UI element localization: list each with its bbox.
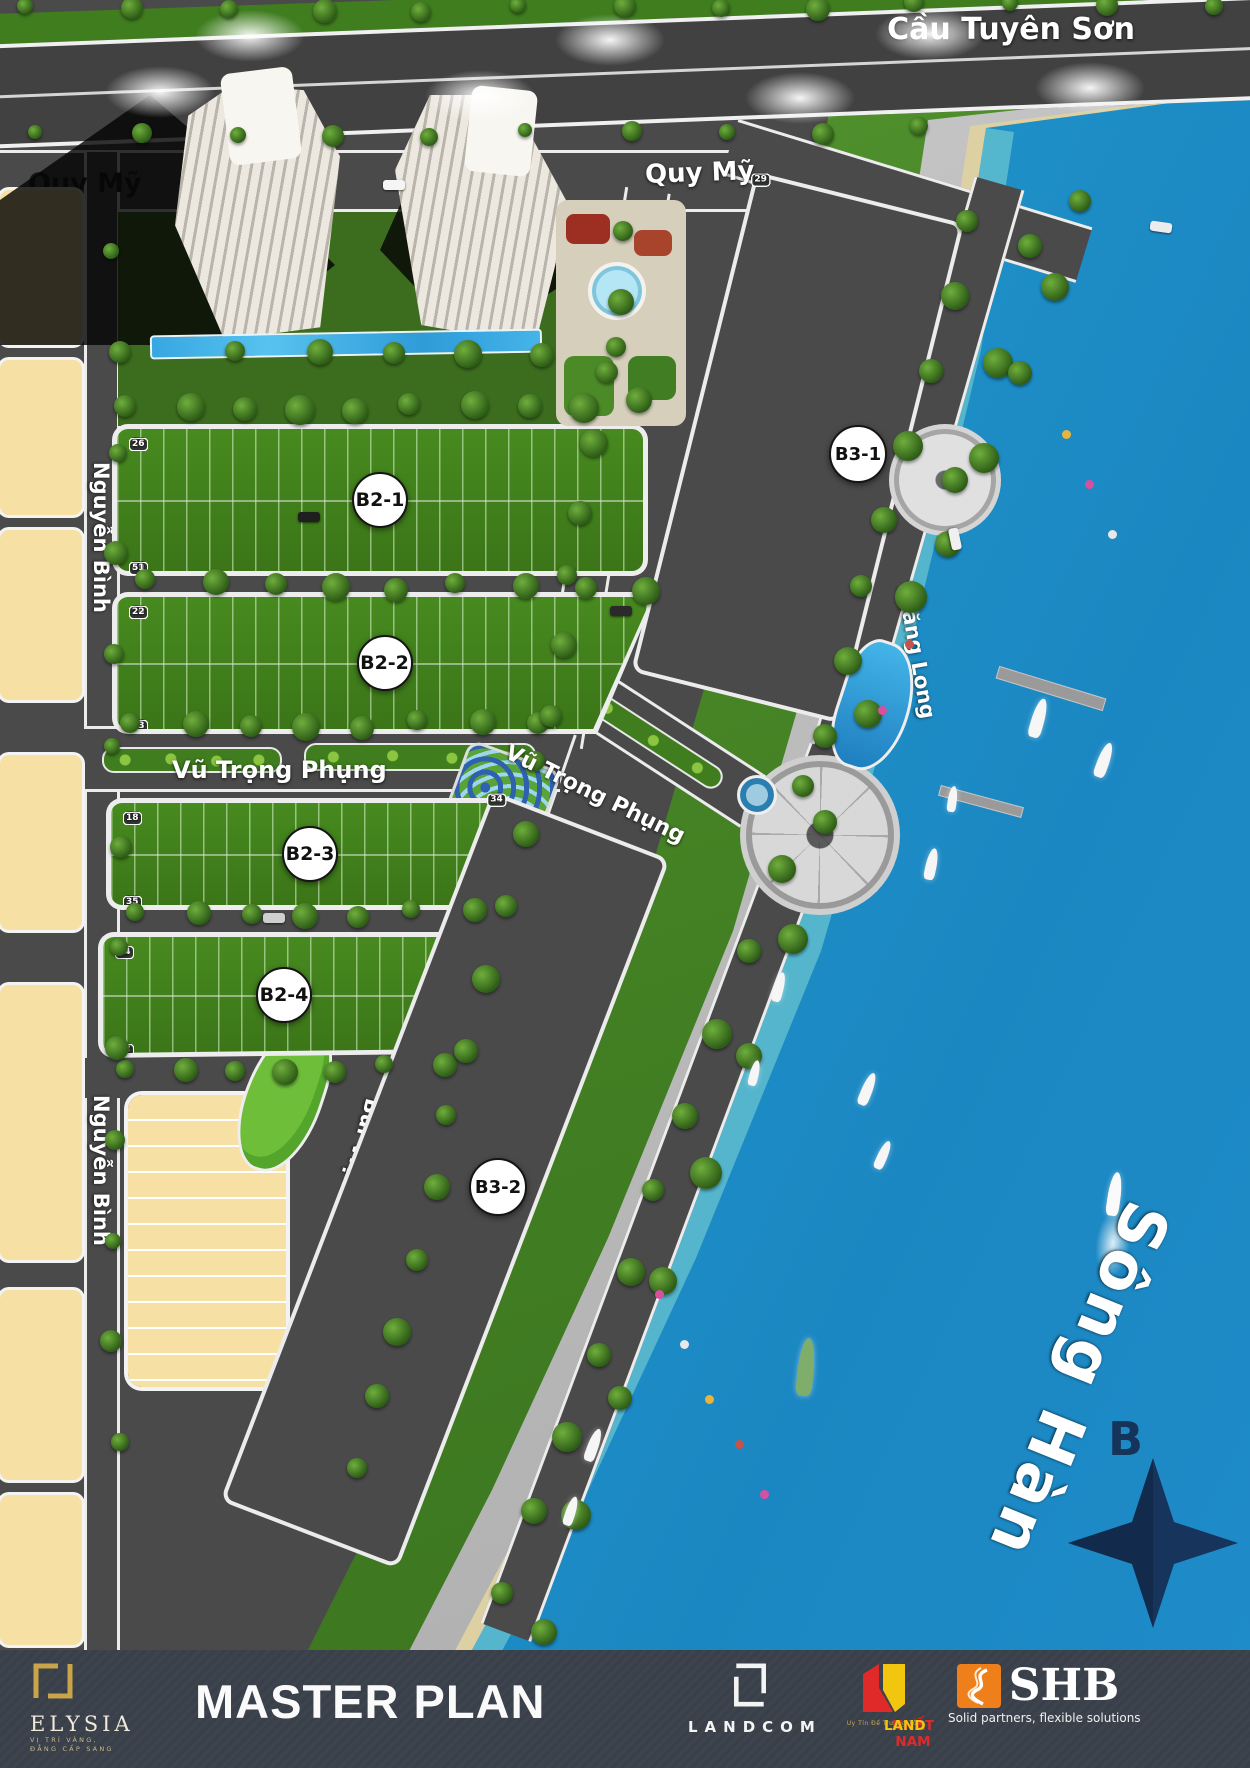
tree [813,810,837,834]
tree [454,340,482,368]
tree [712,0,730,17]
tree [941,282,969,310]
tree [406,1249,428,1271]
tree [454,1039,478,1063]
tree [342,398,368,424]
tree [513,573,539,599]
tree [530,343,554,367]
tree [792,775,814,797]
flower-bed [878,706,887,715]
tree [265,573,287,595]
tree [433,1053,457,1077]
tree [513,821,539,847]
tree [622,121,642,141]
tree [672,1103,698,1129]
tree [424,1174,450,1200]
tree [402,900,420,918]
tree [540,705,562,727]
block-lawn: 1345678910111213141516171819202223252627… [117,597,652,729]
lot-number: 29 [751,174,770,187]
block-label-B2-2: B2-2 [357,635,413,691]
existing-lot [0,985,82,1260]
car [263,913,285,923]
tree [111,1433,129,1451]
existing-lot [0,360,82,515]
bridge-lane-divider [0,46,1250,99]
nhat-nam-land-logo: NHẤT NAM LAND Uy Tín Để Trường Tồn [826,1660,942,1727]
lot-number: 34 [487,794,506,807]
tree [285,395,315,425]
tree [230,127,246,143]
tree [109,444,127,462]
tree [126,903,144,921]
tree [942,467,968,493]
existing-lot [0,530,82,700]
existing-lot [0,1290,82,1480]
street-label-nguyen-binh: Nguyễn Bình [89,1095,113,1246]
tree [495,895,517,917]
elysia-square-icon [30,1658,76,1704]
tree [813,724,837,748]
flower-bed [760,1490,769,1499]
flower-bed [1062,430,1071,439]
block-label-B2-4: B2-4 [256,967,312,1023]
tree [203,569,229,595]
tree [225,341,245,361]
tree [109,341,131,363]
tree [240,715,262,737]
tree [580,429,608,457]
tree [956,210,978,232]
flower-bed [634,230,672,256]
tree [642,1179,664,1201]
existing-lot [0,1495,82,1645]
flower-bed [735,1440,744,1449]
tree [347,1458,367,1478]
street-label-vu-trong-phung: Vũ Trọng Phụng [172,756,387,784]
tree [557,565,577,585]
tree [854,700,882,728]
tree [613,221,633,241]
tree [1096,0,1118,16]
car [383,180,405,190]
elysia-name: ELYSIA [30,1712,180,1736]
tree [470,709,496,735]
tree [552,1422,582,1452]
flower-bed [905,640,914,649]
tree [690,1157,722,1189]
tree [850,575,872,597]
shb-flame-icon [957,1664,1001,1708]
tree [383,342,405,364]
tree [103,243,119,259]
tree [617,1258,645,1286]
tree [1041,273,1069,301]
tree [969,443,999,473]
tree [910,117,928,135]
tree [778,924,808,954]
flower-bed [655,1290,664,1299]
tree [1018,234,1042,258]
bridge-label: Cầu Tuyên Sơn [887,12,1135,47]
tree [132,123,152,143]
block-label-B3-2: B3-2 [469,1158,527,1216]
tree [895,581,927,613]
villa-lot: 34 [495,799,498,802]
block-label-B3-1: B3-1 [829,425,887,483]
tree [569,393,599,423]
tree [272,1059,298,1085]
tree [365,1384,389,1408]
block-B2-1: 1345678910111213141516171819202122232426… [112,424,648,576]
shb-logo-row: SHB [948,1664,1128,1708]
tree [626,387,652,413]
tree [177,393,205,421]
tree [350,716,374,740]
tree [28,125,42,139]
flower-bed [1085,480,1094,489]
tree [104,644,124,664]
lot-number: 18 [123,812,142,825]
tree [110,836,132,858]
tree [768,855,796,883]
landcom-name: LANDCOM [688,1718,812,1736]
lot-number: 26 [129,438,148,451]
flower-bed [1108,530,1117,539]
flower-bed [566,214,610,244]
shb-tagline: Solid partners, flexible solutions [948,1711,1128,1725]
tree [116,1060,134,1078]
shb-name: SHB [1009,1664,1120,1708]
tree [135,569,155,589]
elysia-tagline: ĐẲNG CẤP SANG [30,1745,180,1754]
compass-rose-icon [1058,1448,1248,1638]
shb-logo: SHB Solid partners, flexible solutions [948,1664,1128,1725]
villa-lot: 29 [759,179,761,181]
tree [587,1343,611,1367]
street-label-nguyen-binh: Nguyễn Bình [89,462,113,613]
tree [632,577,660,605]
tree [322,573,350,601]
tree [608,289,634,315]
tree [383,1318,411,1346]
tree [225,1061,245,1081]
block-label-B2-1: B2-1 [352,472,408,528]
existing-lot [0,755,82,930]
tree [461,391,489,419]
tree [104,738,120,754]
flower-bed [680,1340,689,1349]
tree [398,393,420,415]
tree [436,1105,456,1125]
tower-roof [220,66,303,166]
tree [606,337,626,357]
tree [322,125,344,147]
tree [347,906,369,928]
master-plan-map: Cầu Tuyên Sơn 13456789101112131415161718… [0,0,1250,1768]
elysia-logo: ELYSIA VỊ TRÍ VÀNG, ĐẲNG CẤP SANG [30,1658,180,1754]
tree [806,0,830,21]
block-label-B2-3: B2-3 [282,826,338,882]
tree [491,1582,513,1604]
tree [384,578,408,602]
tree [242,904,262,924]
footer-bar: ELYSIA VỊ TRÍ VÀNG, ĐẲNG CẤP SANG MASTER… [0,1650,1250,1768]
tree [472,965,500,993]
block-lawn: 1345678910111213141516181921222324252627… [111,803,509,905]
tree [105,1233,121,1249]
tree [220,0,238,18]
tree [187,901,211,925]
fountain [737,775,777,815]
tree [518,123,532,137]
tree [521,1498,547,1524]
landcom-square-icon [729,1664,771,1706]
tree [233,397,257,421]
tree [510,0,526,13]
tree [105,1036,129,1060]
tree [919,359,943,383]
tree [608,1386,632,1410]
tree [105,1130,125,1150]
tree [1069,190,1091,212]
landcom-logo: LANDCOM [688,1664,812,1736]
lot-number: 22 [129,606,148,619]
tree [292,903,318,929]
tree [702,1019,732,1049]
block-lawn: 1345678910111213141516171819202122232426… [117,429,643,571]
tree [518,394,542,418]
nhat-nam-land-word: LAND [884,1718,926,1734]
tree [324,1061,346,1083]
tree [445,573,465,593]
car [610,606,632,616]
car [298,512,320,522]
tree [174,1058,198,1082]
tree [307,339,333,365]
tree [313,0,337,23]
tree [893,431,923,461]
tree [120,713,140,733]
tree [463,898,487,922]
page-title: MASTER PLAN [195,1674,545,1729]
tree [531,1619,557,1645]
tree [1008,361,1032,385]
elysia-tagline: VỊ TRÍ VÀNG, [30,1736,180,1745]
flower-bed [705,1395,714,1404]
tree [114,395,136,417]
nhat-nam-n-icon [859,1660,909,1714]
street-label-quy-my: Quy Mỹ [645,156,755,190]
tree [812,123,834,145]
